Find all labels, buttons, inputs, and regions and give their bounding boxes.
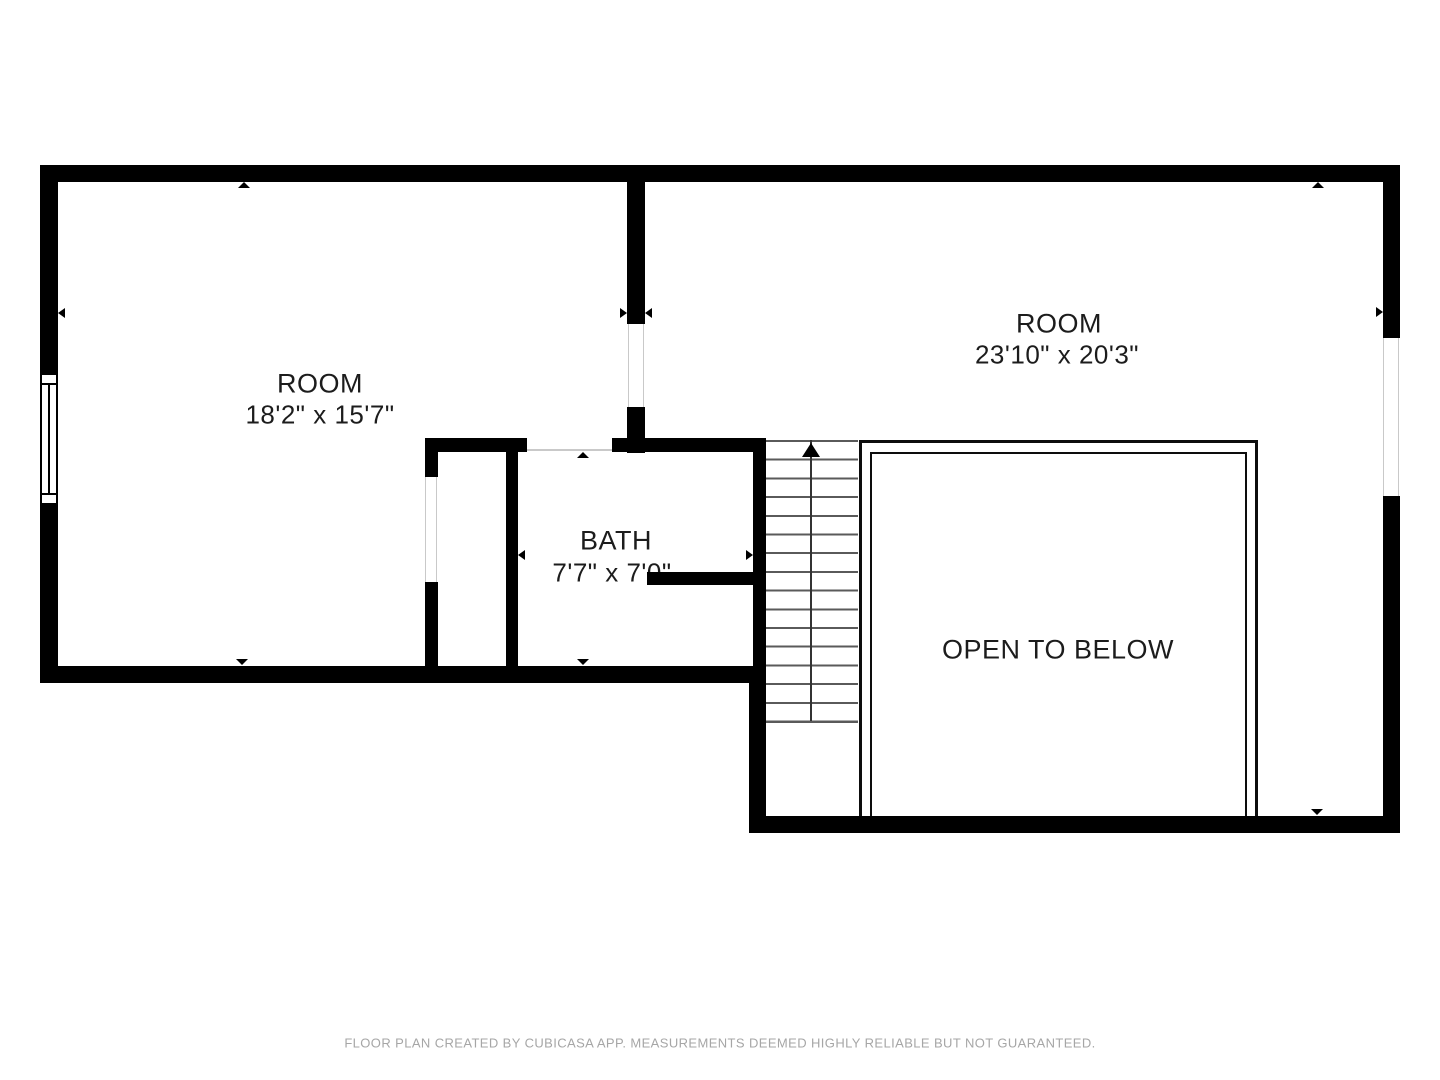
floor-plan-page: ROOM 18'2" x 15'7" ROOM 23'10" x 20'3" B… [0, 0, 1440, 1080]
wall-right-lower [1383, 496, 1400, 833]
doorway-divider-edge-left [628, 324, 629, 407]
wall-bottom-right [749, 816, 1400, 833]
room-left-dimensions: 18'2" x 15'7" [245, 400, 394, 431]
marker-arrow-up-icon [577, 452, 589, 458]
room-right-label: ROOM [1016, 309, 1102, 340]
marker-arrow-left-icon [58, 308, 65, 318]
wall-right-upper [1383, 165, 1400, 338]
marker-arrow-left-icon [645, 308, 652, 318]
wall-bath-top-left [425, 438, 527, 452]
staircase-center-line [810, 440, 812, 721]
footer-disclaimer: FLOOR PLAN CREATED BY CUBICASA APP. MEAS… [344, 1036, 1095, 1051]
marker-arrow-down-icon [236, 659, 248, 665]
wall-closet-divider [506, 452, 518, 668]
marker-arrow-right-icon [746, 550, 753, 560]
marker-arrow-right-icon [620, 308, 627, 318]
window-left-icon [40, 373, 58, 505]
wall-closet-left-upper [425, 452, 438, 477]
wall-bottom-left [40, 666, 766, 683]
room-left-label: ROOM [277, 369, 363, 400]
window-right-edge-right [1398, 338, 1399, 496]
marker-arrow-down-icon [577, 659, 589, 665]
wall-stair-stub [749, 666, 766, 817]
wall-divider-upper [627, 182, 645, 324]
wall-bath-stub [647, 572, 766, 585]
doorway-bath-threshold [527, 449, 612, 451]
marker-arrow-right-icon [1376, 307, 1383, 317]
wall-left-lower [40, 505, 58, 683]
bath-label: BATH [580, 526, 652, 557]
wall-left-upper [40, 165, 58, 373]
wall-top [40, 165, 1400, 182]
marker-arrow-left-icon [518, 550, 525, 560]
staircase [765, 440, 858, 723]
doorway-closet-edge-left [425, 477, 426, 582]
open-to-below-box [859, 440, 1258, 826]
wall-closet-left-lower [425, 582, 438, 668]
window-right-edge-left [1383, 338, 1384, 496]
wall-bath-top-right [612, 438, 766, 452]
doorway-divider-edge-right [643, 324, 644, 407]
marker-arrow-up-icon [238, 182, 250, 188]
window-pane-line [48, 385, 50, 493]
open-to-below-label: OPEN TO BELOW [942, 635, 1174, 666]
room-right-dimensions: 23'10" x 20'3" [975, 340, 1139, 371]
wall-bath-right [753, 438, 766, 668]
doorway-closet-edge-right [436, 477, 437, 582]
marker-arrow-down-icon [1311, 809, 1323, 815]
marker-arrow-up-icon [1312, 182, 1324, 188]
staircase-up-arrow-icon [802, 443, 820, 457]
window-sill-bottom [42, 493, 56, 495]
